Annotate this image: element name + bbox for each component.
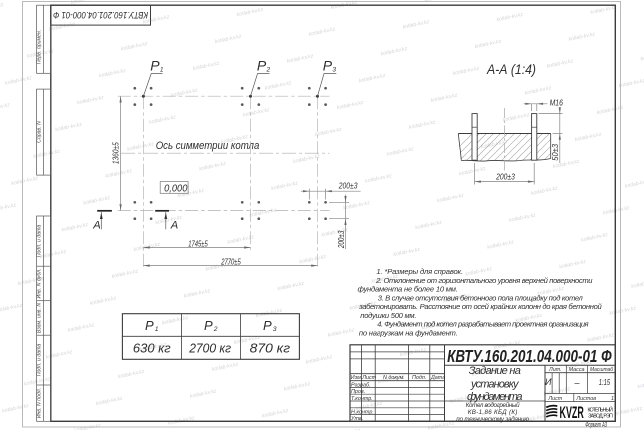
svg-text:Р: Р <box>263 318 272 333</box>
svg-text:Листов: Листов <box>575 396 596 402</box>
svg-text:Ось симметрии котла: Ось симметрии котла <box>156 140 260 152</box>
svg-text:kotlab-kv.kz: kotlab-kv.kz <box>171 87 199 99</box>
svg-text:КВТУ.160.201.04.000-01 Ф: КВТУ.160.201.04.000-01 Ф <box>447 346 612 366</box>
svg-text:kotlab-kv.kz: kotlab-kv.kz <box>587 332 615 344</box>
svg-text:kotlab-kv.kz: kotlab-kv.kz <box>155 215 183 227</box>
svg-text:Подп.: Подп. <box>412 375 426 381</box>
svg-text:kotlab-kv.kz: kotlab-kv.kz <box>61 222 89 234</box>
svg-text:kotlab-kv.kz: kotlab-kv.kz <box>120 41 148 53</box>
svg-text:kotlab-kv.kz: kotlab-kv.kz <box>236 7 264 19</box>
svg-text:Лист: Лист <box>547 396 562 402</box>
svg-text:kotlab-kv.kz: kotlab-kv.kz <box>358 73 386 85</box>
svg-text:по техническому заданию: по техническому заданию <box>456 416 529 423</box>
svg-text:kotlab-kv.kz: kotlab-kv.kz <box>264 80 292 92</box>
svg-text:kotlab-kv.kz: kotlab-kv.kz <box>568 31 596 43</box>
svg-text:Инв. N дубл.: Инв. N дубл. <box>37 268 43 298</box>
svg-text:kotlab-kv.kz: kotlab-kv.kz <box>2 403 30 415</box>
svg-text:kotlab-kv.kz: kotlab-kv.kz <box>399 347 427 359</box>
svg-text:фундамента: фундамента <box>467 391 523 403</box>
svg-text:kotlab-kv.kz: kotlab-kv.kz <box>430 92 458 104</box>
svg-text:200±3: 200±3 <box>495 172 515 181</box>
svg-text:Р: Р <box>257 58 267 74</box>
svg-text:kotlab-kv.kz: kotlab-kv.kz <box>637 379 644 391</box>
svg-text:Масса: Масса <box>569 367 585 373</box>
svg-text:kotlab-kv.kz: kotlab-kv.kz <box>559 259 587 271</box>
svg-text:kotlab-kv.kz: kotlab-kv.kz <box>308 26 336 38</box>
svg-text:2: 2 <box>266 66 271 73</box>
svg-text:kotlab-kv.kz: kotlab-kv.kz <box>286 53 314 65</box>
svg-text:забетонировать. Расстояние от: забетонировать. Расстояние от осей крайн… <box>358 302 602 311</box>
svg-text:Перв. примен.: Перв. примен. <box>37 30 43 64</box>
svg-text:kotlab-kv.kz: kotlab-kv.kz <box>618 78 644 90</box>
svg-text:870 кг: 870 кг <box>250 341 291 356</box>
svg-text:kotlab-kv.kz: kotlab-kv.kz <box>624 178 644 190</box>
svg-text:Р: Р <box>145 318 154 333</box>
svg-text:kotlab-kv.kz: kotlab-kv.kz <box>380 46 408 58</box>
svg-text:Т.контр.: Т.контр. <box>351 396 373 402</box>
svg-text:0,000: 0,000 <box>164 183 187 194</box>
svg-text:КОТЕЛЬНЫЙ: КОТЕЛЬНЫЙ <box>588 405 614 413</box>
svg-text:kotlab-kv.kz: kotlab-kv.kz <box>33 148 61 160</box>
svg-text:kotlab-kv.kz: kotlab-kv.kz <box>5 75 33 87</box>
svg-text:Инв. N подл.: Инв. N подл. <box>37 388 43 418</box>
svg-text:2770±5: 2770±5 <box>221 257 242 266</box>
svg-text:kotlab-kv.kz: kotlab-kv.kz <box>149 114 177 126</box>
svg-text:kotlab-kv.kz: kotlab-kv.kz <box>127 141 155 153</box>
svg-text:Утв.: Утв. <box>350 416 363 422</box>
svg-text:Формат А3: Формат А3 <box>585 422 607 429</box>
svg-text:kotlab-kv.kz: kotlab-kv.kz <box>45 349 73 361</box>
svg-text:kotlab-kv.kz: kotlab-kv.kz <box>0 329 2 341</box>
svg-text:–: – <box>573 378 580 388</box>
svg-text:kotlab-kv.kz: kotlab-kv.kz <box>640 51 644 63</box>
svg-text:200±3: 200±3 <box>338 182 358 191</box>
svg-text:Разраб.: Разраб. <box>351 382 371 388</box>
svg-text:kotlab-kv.kz: kotlab-kv.kz <box>615 406 643 418</box>
svg-text:kotlab-kv.kz: kotlab-kv.kz <box>199 161 227 173</box>
svg-text:kotlab-kv.kz: kotlab-kv.kz <box>55 122 83 134</box>
svg-text:kotlab-kv.kz: kotlab-kv.kz <box>387 146 415 158</box>
svg-text:kotlab-kv.kz: kotlab-kv.kz <box>603 205 631 217</box>
svg-text:1:15: 1:15 <box>599 377 611 387</box>
svg-text:kotlab-kv.kz: kotlab-kv.kz <box>327 327 355 339</box>
svg-text:kotlab-kv.kz: kotlab-kv.kz <box>283 381 311 393</box>
svg-text:kotlab-kv.kz: kotlab-kv.kz <box>48 21 76 33</box>
svg-text:kotlab-kv.kz: kotlab-kv.kz <box>496 12 524 24</box>
svg-text:kotlab-kv.kz: kotlab-kv.kz <box>546 58 574 70</box>
svg-text:установку: установку <box>470 378 520 390</box>
svg-text:kotlab-kv.kz: kotlab-kv.kz <box>261 408 289 420</box>
svg-text:kotlab-kv.kz: kotlab-kv.kz <box>509 212 537 224</box>
svg-text:kotlab-kv.kz: kotlab-kv.kz <box>0 202 17 214</box>
svg-text:А-А (1:4): А-А (1:4) <box>486 62 536 77</box>
svg-text:1: 1 <box>155 326 159 333</box>
svg-text:kotlab-kv.kz: kotlab-kv.kz <box>474 39 502 51</box>
svg-text:kotlab-kv.kz: kotlab-kv.kz <box>365 173 393 185</box>
svg-text:kotlab-kv.kz: kotlab-kv.kz <box>67 322 95 334</box>
svg-text:КВТУ.160.201.04.000-01 Ф: КВТУ.160.201.04.000-01 Ф <box>53 10 148 21</box>
svg-text:Котел водогрейный: Котел водогрейный <box>466 402 520 409</box>
svg-text:kotlab-kv.kz: kotlab-kv.kz <box>277 281 305 293</box>
svg-text:kotlab-kv.kz: kotlab-kv.kz <box>0 102 11 114</box>
svg-text:kotlab-kv.kz: kotlab-kv.kz <box>631 278 644 290</box>
svg-text:1. *Размеры для справок.: 1. *Размеры для справок. <box>376 267 463 276</box>
svg-text:kotlab-kv.kz: kotlab-kv.kz <box>189 388 217 400</box>
svg-text:kotlab-kv.kz: kotlab-kv.kz <box>315 127 343 139</box>
svg-text:630 кг: 630 кг <box>133 341 171 356</box>
svg-text:kotlab-kv.kz: kotlab-kv.kz <box>117 369 145 381</box>
svg-text:kotlab-kv.kz: kotlab-kv.kz <box>402 19 430 31</box>
svg-text:kotlab-kv.kz: kotlab-kv.kz <box>77 95 105 107</box>
svg-text:3: 3 <box>273 326 277 333</box>
svg-text:kotlab-kv.kz: kotlab-kv.kz <box>487 239 515 251</box>
svg-text:И: И <box>545 377 552 387</box>
svg-text:kotlab-kv.kz: kotlab-kv.kz <box>459 166 487 178</box>
svg-text:фундамента не более 10 мм.: фундамента не более 10 мм. <box>358 285 458 294</box>
svg-text:по нагрузкам на фундамент.: по нагрузкам на фундамент. <box>359 329 458 338</box>
svg-text:А: А <box>92 220 100 232</box>
svg-text:Н.контр.: Н.контр. <box>351 409 374 415</box>
svg-text:2: 2 <box>213 326 218 333</box>
svg-text:kotlab-kv.kz: kotlab-kv.kz <box>183 288 211 300</box>
svg-text:kotlab-kv.kz: kotlab-kv.kz <box>408 119 436 131</box>
svg-text:kotlab-kv.kz: kotlab-kv.kz <box>590 4 618 16</box>
svg-text:kotlab-kv.kz: kotlab-kv.kz <box>581 232 609 244</box>
svg-text:kotlab-kv.kz: kotlab-kv.kz <box>502 112 530 124</box>
svg-text:kotlab-kv.kz: kotlab-kv.kz <box>336 100 364 112</box>
svg-text:50±3: 50±3 <box>551 143 560 160</box>
svg-text:ЗАВОД, РЭП: ЗАВОД, РЭП <box>588 413 613 419</box>
svg-text:Р: Р <box>150 58 160 74</box>
svg-text:KVZR: KVZR <box>560 403 584 422</box>
svg-text:kotlab-kv.kz: kotlab-kv.kz <box>437 193 465 205</box>
svg-text:Подп. и дата: Подп. и дата <box>37 344 43 377</box>
svg-text:kotlab-kv.kz: kotlab-kv.kz <box>293 153 321 165</box>
svg-text:kotlab-kv.kz: kotlab-kv.kz <box>0 2 5 14</box>
svg-text:Пров.: Пров. <box>351 389 365 395</box>
svg-text:N докум.: N докум. <box>383 375 405 381</box>
svg-text:kotlab-kv.kz: kotlab-kv.kz <box>609 305 637 317</box>
svg-text:Взам. инв. N: Взам. инв. N <box>37 303 43 333</box>
svg-text:Дата: Дата <box>430 375 445 381</box>
svg-text:1: 1 <box>160 66 164 73</box>
svg-text:2700 кг: 2700 кг <box>188 341 231 356</box>
svg-text:подушки 500 мм.: подушки 500 мм. <box>360 311 416 320</box>
svg-text:kotlab-kv.kz: kotlab-kv.kz <box>574 132 602 144</box>
svg-text:kotlab-kv.kz: kotlab-kv.kz <box>83 195 111 207</box>
svg-text:kotlab-kv.kz: kotlab-kv.kz <box>524 85 552 97</box>
svg-text:4. Фундамент под котел разраба: 4. Фундамент под котел разрабатывает про… <box>377 320 588 329</box>
svg-text:kotlab-kv.kz: kotlab-kv.kz <box>393 246 421 258</box>
svg-text:Справ. N: Справ. N <box>37 121 43 143</box>
svg-text:Задание на: Задание на <box>469 365 521 377</box>
svg-text:kotlab-kv.kz: kotlab-kv.kz <box>192 60 220 72</box>
svg-text:kotlab-kv.kz: kotlab-kv.kz <box>89 295 117 307</box>
svg-text:kotlab-kv.kz: kotlab-kv.kz <box>271 180 299 192</box>
svg-text:Подп. и дата: Подп. и дата <box>37 225 43 258</box>
svg-text:kotlab-kv.kz: kotlab-kv.kz <box>161 315 189 327</box>
svg-text:kotlab-kv.kz: kotlab-kv.kz <box>243 107 271 119</box>
svg-text:1: 1 <box>611 396 614 402</box>
svg-text:3. В случае отсутствия бетонно: 3. В случае отсутствия бетонного пола пл… <box>378 294 584 303</box>
svg-text:Масштаб: Масштаб <box>590 367 614 373</box>
svg-text:kotlab-kv.kz: kotlab-kv.kz <box>299 254 327 266</box>
svg-text:kotlab-kv.kz: kotlab-kv.kz <box>531 185 559 197</box>
svg-text:kotlab-kv.kz: kotlab-kv.kz <box>96 396 124 408</box>
svg-text:М16: М16 <box>550 99 564 108</box>
svg-text:kotlab-kv.kz: kotlab-kv.kz <box>452 65 480 77</box>
svg-text:3: 3 <box>332 66 336 73</box>
svg-text:kotlab-kv.kz: kotlab-kv.kz <box>24 376 52 388</box>
svg-text:1745±5: 1745±5 <box>188 239 208 248</box>
svg-text:kotlab-kv.kz: kotlab-kv.kz <box>11 175 39 187</box>
svg-text:kotlab-kv.kz: kotlab-kv.kz <box>74 422 102 430</box>
svg-text:2. Отклонение от горизонтально: 2. Отклонение от горизонтального уровня … <box>375 276 593 285</box>
svg-text:kotlab-kv.kz: kotlab-kv.kz <box>415 220 443 232</box>
svg-text:kotlab-kv.kz: kotlab-kv.kz <box>105 168 133 180</box>
svg-text:1360±5: 1360±5 <box>111 142 120 164</box>
svg-text:kotlab-kv.kz: kotlab-kv.kz <box>99 68 127 80</box>
svg-text:Р: Р <box>204 318 213 333</box>
svg-text:kotlab-kv.kz: kotlab-kv.kz <box>214 34 242 46</box>
svg-text:200±3: 200±3 <box>337 230 346 249</box>
svg-text:kotlab-kv.kz: kotlab-kv.kz <box>249 207 277 219</box>
svg-text:kotlab-kv.kz: kotlab-kv.kz <box>211 361 239 373</box>
svg-text:kotlab-kv.kz: kotlab-kv.kz <box>111 268 139 280</box>
svg-text:kotlab-kv.kz: kotlab-kv.kz <box>343 200 371 212</box>
svg-text:Лит.: Лит. <box>548 367 562 373</box>
svg-text:Изм.Лист: Изм.Лист <box>351 375 377 381</box>
svg-text:Р: Р <box>323 58 333 74</box>
svg-text:А: А <box>170 220 178 232</box>
svg-text:kotlab-kv.kz: kotlab-kv.kz <box>0 303 23 315</box>
svg-text:kotlab-kv.kz: kotlab-kv.kz <box>305 354 333 366</box>
